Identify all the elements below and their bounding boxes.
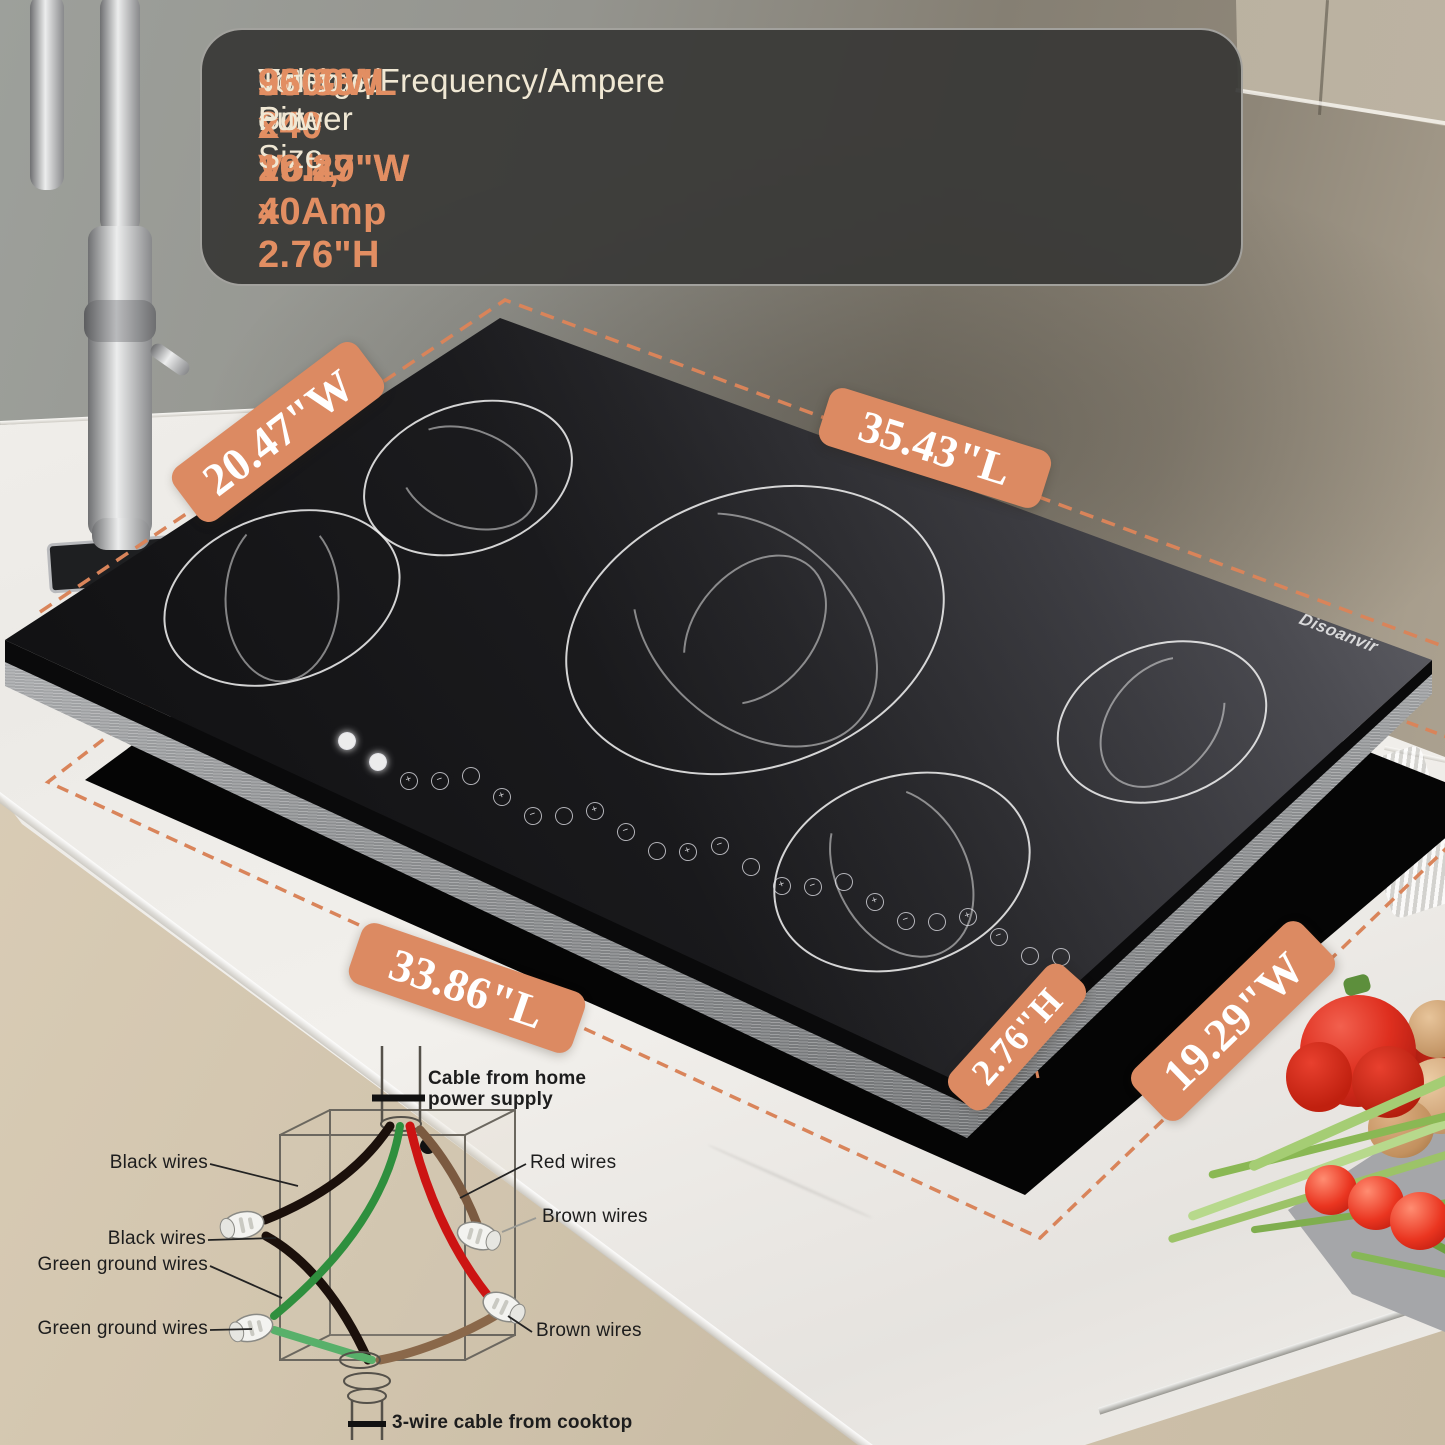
burner-inner-ring — [383, 406, 553, 549]
wiring-label-green-1: Green ground wires — [30, 1254, 208, 1275]
wiring-label-brown-2: Brown wires — [536, 1320, 686, 1341]
wiring-label-black-2: Black wires — [58, 1228, 206, 1249]
wiring-label-black-1: Black wires — [50, 1152, 208, 1173]
bell-pepper-lobe — [1286, 1042, 1352, 1112]
wiring-label-cooktop-cable: 3-wire cable from cooktop — [392, 1412, 682, 1433]
product-infographic: +−+−+−+−+−+−+− Disoanvir — [0, 0, 1445, 1445]
wiring-label-supply: Cable from home power supply — [428, 1068, 596, 1111]
wiring-label-brown-1: Brown wires — [542, 1206, 692, 1227]
wiring-diagram: Cable from home power supply Black wires… — [30, 1040, 690, 1445]
cherry-tomato — [1390, 1192, 1445, 1250]
wiring-label-red: Red wires — [530, 1152, 680, 1173]
burner-inner-ring — [223, 513, 341, 683]
wire-nut — [218, 1208, 266, 1243]
total-power-value: 9600W — [258, 62, 380, 105]
spec-panel: Cooktop Size 35.43"L x 20.47"W x 2.76"H … — [200, 28, 1243, 286]
wiring-label-green-2: Green ground wires — [34, 1318, 208, 1339]
